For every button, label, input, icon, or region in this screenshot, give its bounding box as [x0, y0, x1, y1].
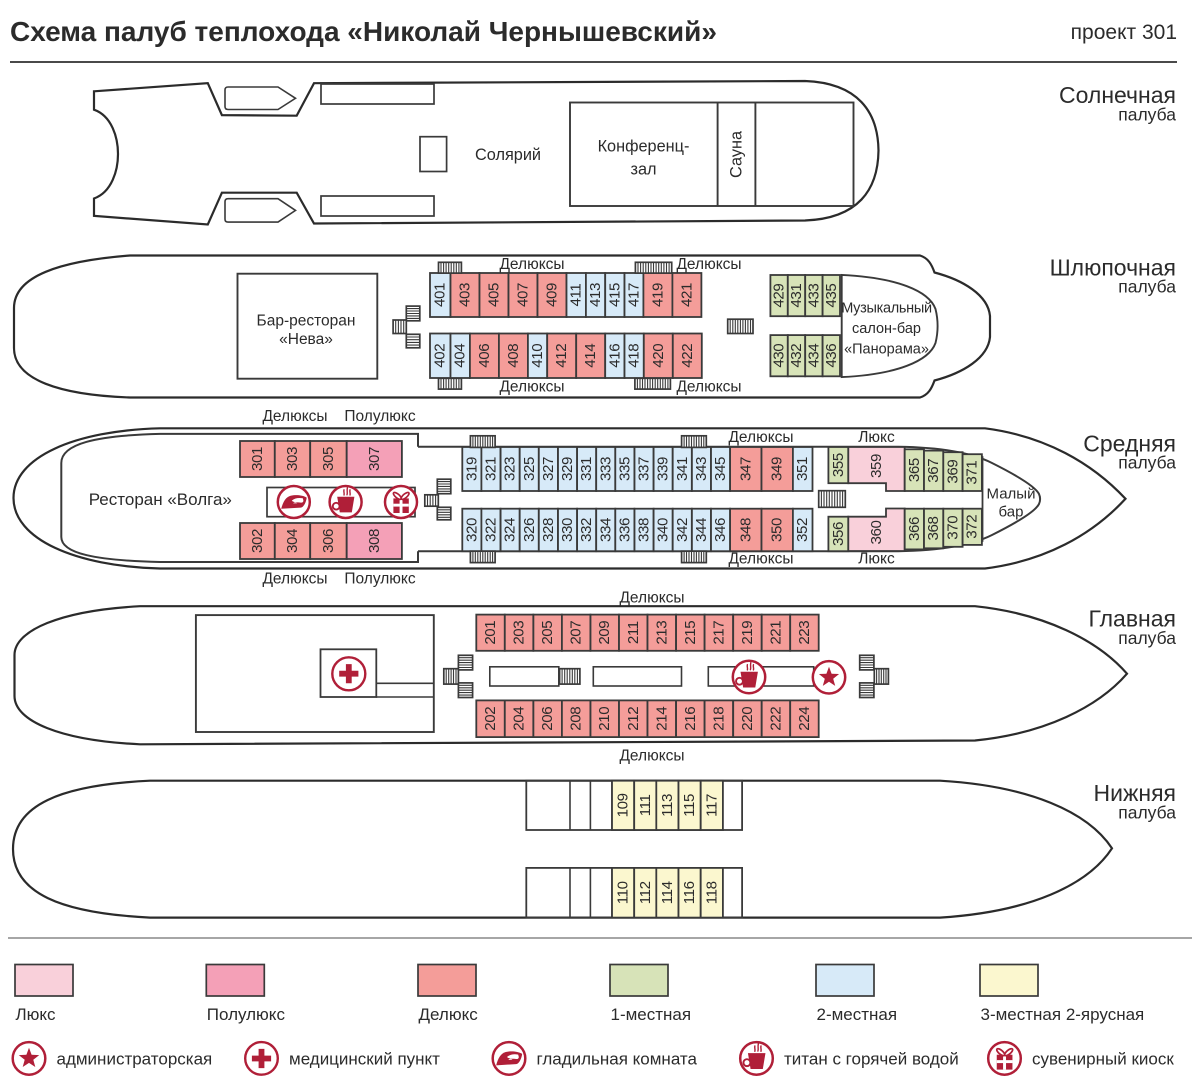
svg-text:Делюксы: Делюксы	[728, 429, 793, 446]
svg-text:Делюксы: Делюксы	[676, 256, 741, 273]
svg-text:330: 330	[559, 518, 576, 542]
svg-text:436: 436	[823, 344, 840, 368]
svg-text:207: 207	[568, 621, 585, 645]
svg-text:368: 368	[925, 517, 942, 541]
svg-text:367: 367	[925, 459, 942, 483]
svg-text:319: 319	[463, 457, 480, 481]
svg-text:палуба: палуба	[1118, 453, 1176, 473]
svg-text:414: 414	[582, 344, 599, 368]
svg-text:429: 429	[771, 284, 788, 308]
svg-text:402: 402	[432, 344, 449, 368]
svg-text:370: 370	[944, 516, 961, 540]
svg-text:401: 401	[432, 283, 449, 307]
svg-text:412: 412	[553, 344, 570, 368]
svg-text:356: 356	[830, 522, 847, 546]
svg-text:326: 326	[521, 518, 538, 542]
svg-text:415: 415	[606, 283, 623, 307]
svg-text:336: 336	[616, 518, 633, 542]
svg-text:334: 334	[597, 518, 614, 542]
svg-text:406: 406	[476, 344, 493, 368]
svg-text:Делюксы: Делюксы	[676, 378, 741, 395]
svg-text:323: 323	[502, 457, 519, 481]
svg-text:435: 435	[823, 284, 840, 308]
svg-text:306: 306	[320, 529, 337, 553]
svg-text:433: 433	[805, 284, 822, 308]
svg-text:113: 113	[659, 794, 676, 817]
svg-text:титан с горячей водой: титан с горячей водой	[784, 1050, 959, 1069]
svg-text:222: 222	[768, 707, 785, 731]
svg-text:346: 346	[712, 518, 729, 542]
svg-text:Музыкальный: Музыкальный	[841, 301, 932, 317]
svg-text:палуба: палуба	[1118, 628, 1176, 648]
svg-text:305: 305	[320, 447, 337, 471]
svg-text:216: 216	[682, 707, 699, 731]
svg-text:223: 223	[796, 621, 813, 645]
svg-text:118: 118	[703, 881, 720, 904]
svg-text:320: 320	[463, 518, 480, 542]
svg-text:321: 321	[483, 457, 500, 481]
svg-text:411: 411	[568, 284, 585, 307]
svg-text:палуба: палуба	[1118, 105, 1176, 125]
svg-text:Делюксы: Делюксы	[728, 550, 793, 567]
svg-text:221: 221	[768, 621, 785, 645]
svg-text:214: 214	[653, 707, 670, 731]
svg-text:Солярий: Солярий	[475, 146, 541, 164]
svg-text:117: 117	[703, 794, 720, 817]
svg-text:211: 211	[625, 621, 642, 644]
svg-text:366: 366	[906, 517, 923, 541]
svg-text:339: 339	[655, 457, 672, 481]
svg-text:352: 352	[794, 518, 811, 542]
svg-text:213: 213	[653, 621, 670, 645]
svg-text:палуба: палуба	[1118, 277, 1176, 297]
svg-text:«Панорама»: «Панорама»	[844, 342, 929, 358]
svg-text:205: 205	[539, 621, 556, 645]
svg-text:224: 224	[796, 707, 813, 731]
svg-text:111: 111	[637, 795, 654, 817]
svg-text:218: 218	[710, 707, 727, 731]
svg-text:салон-бар: салон-бар	[852, 321, 921, 337]
svg-text:338: 338	[636, 518, 653, 542]
svg-text:416: 416	[606, 344, 623, 368]
svg-text:медицинский пункт: медицинский пункт	[289, 1050, 440, 1069]
svg-text:419: 419	[649, 283, 666, 307]
svg-text:112: 112	[637, 881, 654, 904]
svg-text:219: 219	[739, 621, 756, 645]
svg-text:328: 328	[540, 518, 557, 542]
svg-text:109: 109	[615, 793, 632, 817]
svg-text:422: 422	[679, 344, 696, 368]
svg-text:Конференц-: Конференц-	[598, 138, 690, 156]
svg-text:Делюксы: Делюксы	[619, 748, 684, 765]
svg-text:409: 409	[544, 283, 561, 307]
svg-text:206: 206	[539, 707, 556, 731]
svg-text:410: 410	[529, 344, 546, 368]
svg-text:371: 371	[964, 461, 981, 485]
svg-text:350: 350	[769, 518, 786, 542]
svg-text:Люкс: Люкс	[858, 429, 895, 446]
svg-text:417: 417	[626, 283, 643, 307]
svg-text:430: 430	[771, 344, 788, 368]
svg-text:Полулюкс: Полулюкс	[344, 571, 415, 588]
svg-text:345: 345	[712, 457, 729, 481]
svg-text:340: 340	[655, 518, 672, 542]
svg-text:365: 365	[906, 458, 923, 482]
svg-text:110: 110	[615, 881, 632, 904]
svg-text:335: 335	[616, 457, 633, 481]
svg-text:Бар-ресторан: Бар-ресторан	[257, 312, 356, 329]
svg-text:2-местная: 2-местная	[817, 1005, 898, 1024]
svg-text:3-местная 2-ярусная: 3-местная 2-ярусная	[981, 1005, 1145, 1024]
svg-text:1-местная: 1-местная	[611, 1005, 692, 1024]
svg-text:333: 333	[597, 457, 614, 481]
svg-text:Схема палуб теплохода «Николай: Схема палуб теплохода «Николай Чернышевс…	[10, 16, 717, 47]
svg-text:327: 327	[540, 457, 557, 481]
svg-text:сувенирный киоск: сувенирный киоск	[1032, 1050, 1174, 1069]
svg-text:212: 212	[625, 707, 642, 731]
svg-text:116: 116	[681, 881, 698, 904]
svg-text:303: 303	[284, 447, 301, 471]
svg-text:215: 215	[682, 621, 699, 645]
svg-text:403: 403	[457, 283, 474, 307]
svg-text:359: 359	[868, 454, 885, 478]
svg-text:404: 404	[452, 344, 469, 368]
svg-text:307: 307	[366, 447, 383, 471]
svg-text:217: 217	[710, 621, 727, 645]
svg-text:Делюксы: Делюксы	[262, 571, 327, 588]
svg-text:420: 420	[650, 344, 667, 368]
svg-text:зал: зал	[630, 161, 656, 179]
svg-text:гладильная комната: гладильная комната	[537, 1050, 698, 1069]
svg-text:405: 405	[486, 283, 503, 307]
svg-text:349: 349	[769, 457, 786, 481]
svg-text:208: 208	[568, 707, 585, 731]
svg-text:347: 347	[737, 457, 754, 481]
svg-text:348: 348	[737, 518, 754, 542]
svg-text:342: 342	[674, 518, 691, 542]
svg-text:344: 344	[693, 518, 710, 542]
svg-text:Ресторан «Волга»: Ресторан «Волга»	[89, 490, 232, 509]
svg-text:Малый: Малый	[987, 486, 1036, 503]
svg-text:Делюксы: Делюксы	[499, 378, 564, 395]
svg-text:палуба: палуба	[1118, 803, 1176, 823]
svg-text:369: 369	[944, 460, 961, 484]
svg-text:324: 324	[502, 518, 519, 542]
svg-text:администраторская: администраторская	[57, 1050, 213, 1069]
svg-text:355: 355	[830, 453, 847, 477]
svg-text:431: 431	[788, 284, 805, 308]
svg-text:Люкс: Люкс	[858, 550, 895, 567]
svg-text:проект 301: проект 301	[1071, 21, 1177, 44]
svg-text:209: 209	[596, 621, 613, 645]
svg-text:372: 372	[964, 515, 981, 539]
svg-text:Сауна: Сауна	[728, 130, 746, 178]
svg-text:Делюксы: Делюксы	[262, 408, 327, 425]
svg-text:407: 407	[515, 283, 532, 307]
svg-text:332: 332	[578, 518, 595, 542]
svg-text:308: 308	[366, 529, 383, 553]
svg-text:203: 203	[511, 621, 528, 645]
svg-text:329: 329	[559, 457, 576, 481]
svg-text:Полулюкс: Полулюкс	[344, 408, 415, 425]
svg-text:421: 421	[678, 283, 695, 307]
svg-text:Полулюкс: Полулюкс	[207, 1005, 286, 1024]
svg-text:220: 220	[739, 707, 756, 731]
svg-text:341: 341	[674, 457, 691, 481]
svg-text:325: 325	[521, 457, 538, 481]
svg-text:434: 434	[805, 344, 822, 368]
svg-text:413: 413	[587, 283, 604, 307]
svg-text:322: 322	[483, 518, 500, 542]
svg-text:301: 301	[249, 447, 266, 471]
svg-text:351: 351	[794, 457, 811, 481]
svg-text:114: 114	[659, 881, 676, 904]
svg-text:360: 360	[868, 521, 885, 545]
svg-text:302: 302	[249, 529, 266, 553]
svg-text:432: 432	[788, 344, 805, 368]
svg-text:408: 408	[505, 344, 522, 368]
svg-text:210: 210	[596, 707, 613, 731]
svg-text:201: 201	[482, 621, 499, 645]
svg-text:418: 418	[626, 344, 643, 368]
svg-text:115: 115	[681, 794, 698, 817]
svg-text:202: 202	[482, 707, 499, 731]
svg-text:Делюксы: Делюксы	[499, 256, 564, 273]
svg-text:«Нева»: «Нева»	[279, 331, 333, 348]
svg-text:304: 304	[284, 529, 301, 553]
svg-text:Делюкс: Делюкс	[419, 1005, 479, 1024]
svg-text:204: 204	[511, 707, 528, 731]
svg-text:337: 337	[636, 457, 653, 481]
svg-text:343: 343	[693, 457, 710, 481]
svg-text:бар: бар	[999, 504, 1024, 521]
svg-text:Делюксы: Делюксы	[619, 589, 684, 606]
svg-text:Люкс: Люкс	[16, 1005, 57, 1024]
svg-text:331: 331	[578, 457, 595, 481]
